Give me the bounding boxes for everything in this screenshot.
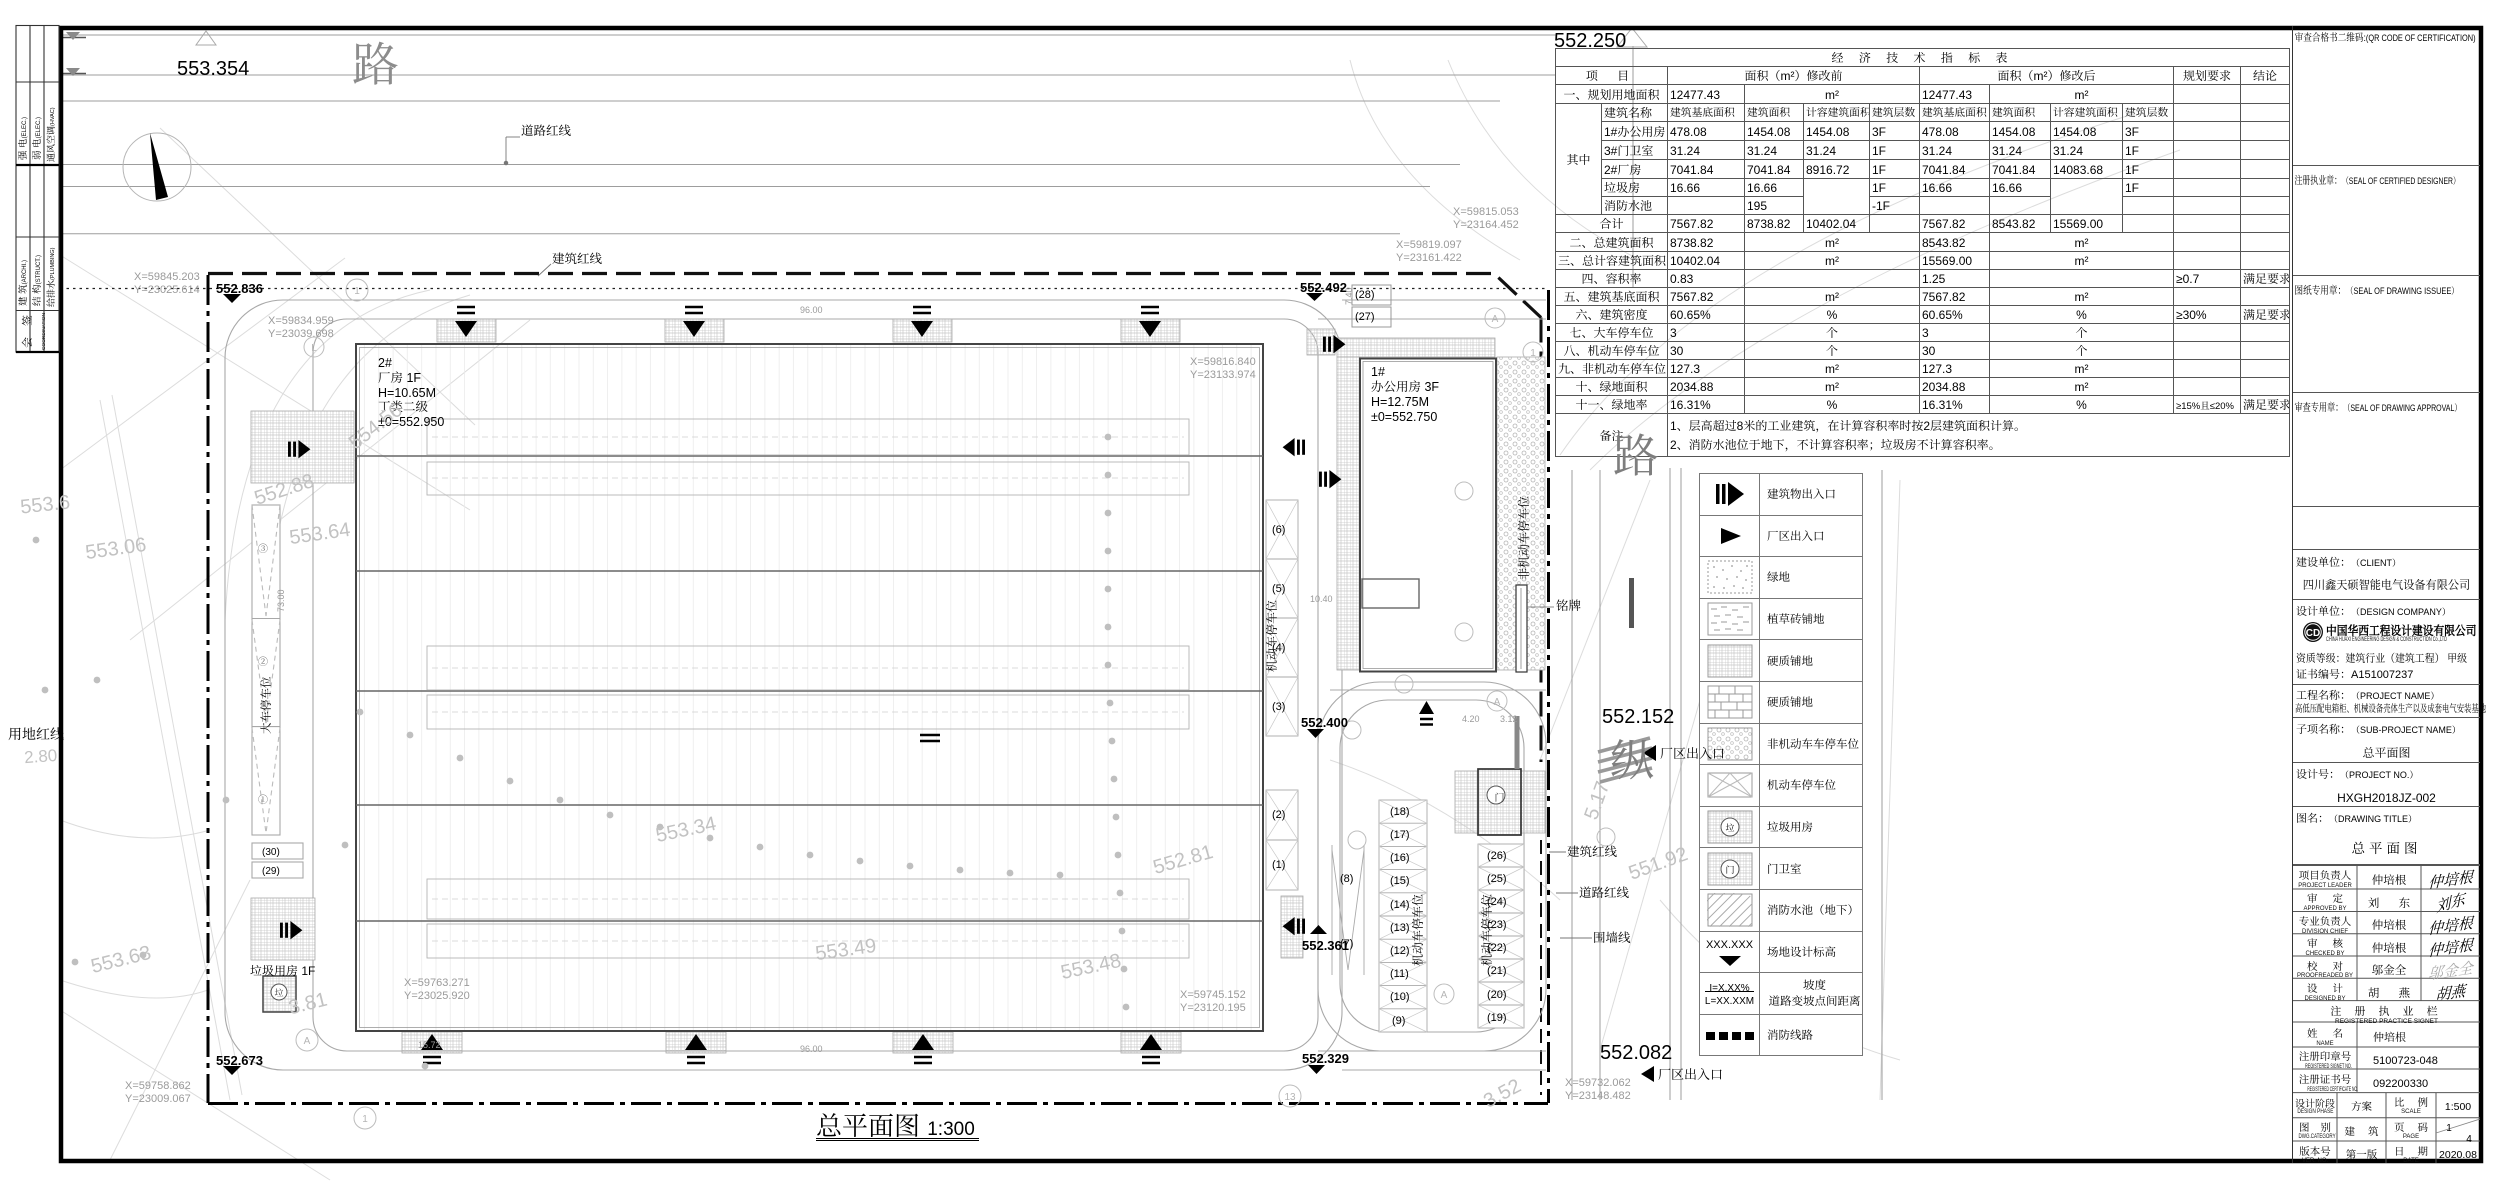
svg-text:A: A	[1492, 314, 1499, 325]
svg-text:垃: 垃	[1725, 821, 1734, 834]
svg-text:CD: CD	[2306, 624, 2320, 639]
svg-text:门: 门	[1725, 863, 1734, 876]
svg-text:L: L	[311, 343, 317, 354]
svg-text:1: 1	[1530, 348, 1536, 359]
svg-text:A: A	[304, 1036, 311, 1047]
svg-text:1: 1	[354, 286, 360, 297]
svg-text:13: 13	[1284, 1092, 1296, 1103]
svg-text:1: 1	[362, 1114, 368, 1125]
svg-text:A: A	[1494, 697, 1501, 708]
svg-text:A: A	[1441, 990, 1448, 1001]
